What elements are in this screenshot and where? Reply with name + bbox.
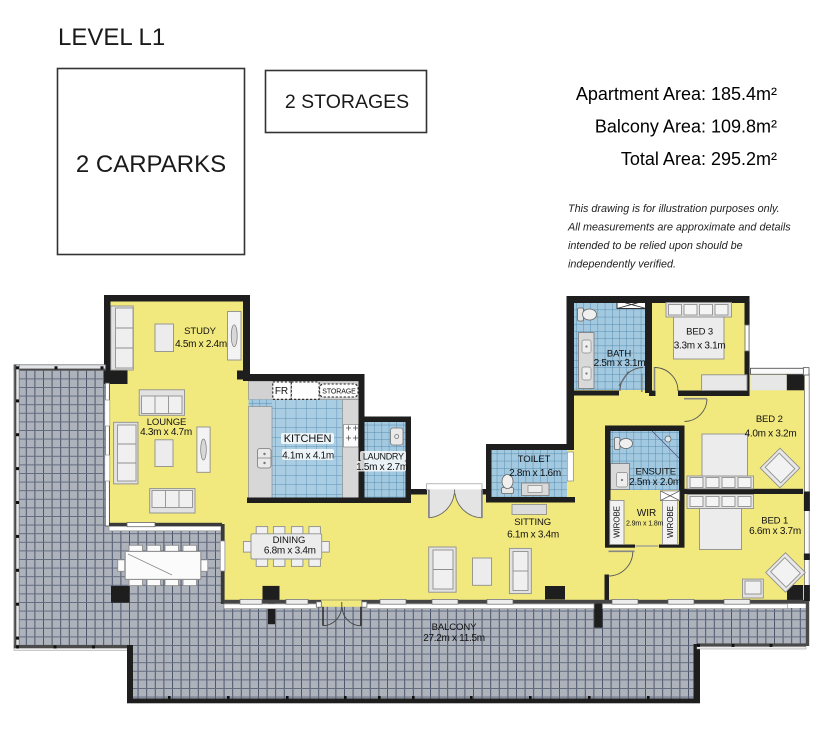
svg-text:This drawing is for illustrati: This drawing is for illustration purpose… xyxy=(568,203,780,215)
svg-text:Balcony Area: 109.8m²: Balcony Area: 109.8m² xyxy=(595,117,777,137)
svg-text:TOILET: TOILET xyxy=(518,454,551,465)
svg-text:2.8m x 1.6m: 2.8m x 1.6m xyxy=(509,468,561,479)
svg-text:WIROBE: WIROBE xyxy=(666,506,675,538)
svg-text:3.3m x 3.1m: 3.3m x 3.1m xyxy=(674,340,726,351)
svg-text:DINING: DINING xyxy=(273,535,306,546)
svg-text:LAUNDRY: LAUNDRY xyxy=(363,452,404,462)
svg-text:WIR: WIR xyxy=(637,508,656,519)
svg-text:4.5m x 2.4m: 4.5m x 2.4m xyxy=(175,339,227,350)
svg-text:27.2m x 11.5m: 27.2m x 11.5m xyxy=(423,633,485,644)
svg-text:BALCONY: BALCONY xyxy=(432,622,477,633)
svg-text:ENSUITE: ENSUITE xyxy=(635,467,675,478)
svg-text:LEVEL L1: LEVEL L1 xyxy=(58,24,165,51)
svg-text:independently verified.: independently verified. xyxy=(568,259,676,271)
svg-text:LOUNGE: LOUNGE xyxy=(147,417,187,428)
svg-text:BED 3: BED 3 xyxy=(686,327,713,338)
svg-text:4.1m x 4.1m: 4.1m x 4.1m xyxy=(282,450,334,461)
svg-text:BATH: BATH xyxy=(607,348,631,359)
svg-text:WIROBE: WIROBE xyxy=(612,506,621,538)
svg-text:STUDY: STUDY xyxy=(184,326,216,337)
svg-text:6.1m x 3.4m: 6.1m x 3.4m xyxy=(507,529,559,540)
svg-text:intended to be relied upon sho: intended to be relied upon should be xyxy=(568,240,743,252)
svg-text:6.6m x 3.7m: 6.6m x 3.7m xyxy=(749,526,801,537)
svg-text:6.8m x 3.4m: 6.8m x 3.4m xyxy=(264,545,316,556)
svg-text:4.3m x 4.7m: 4.3m x 4.7m xyxy=(140,427,192,438)
svg-text:FR: FR xyxy=(275,386,288,397)
svg-text:SITTING: SITTING xyxy=(514,517,551,528)
svg-text:2.5m x 3.1m: 2.5m x 3.1m xyxy=(594,358,646,369)
svg-text:Apartment Area: 185.4m²: Apartment Area: 185.4m² xyxy=(576,84,777,104)
svg-text:Total Area: 295.2m²: Total Area: 295.2m² xyxy=(621,149,777,169)
svg-text:2.9m x 1.8m: 2.9m x 1.8m xyxy=(626,520,664,527)
svg-text:All measurements are approxima: All measurements are approximate and det… xyxy=(567,222,791,234)
svg-text:BED 1: BED 1 xyxy=(761,516,788,527)
svg-text:KITCHEN: KITCHEN xyxy=(284,433,332,445)
svg-text:BED 2: BED 2 xyxy=(756,414,783,425)
svg-text:2 STORAGES: 2 STORAGES xyxy=(285,91,409,113)
svg-text:2 CARPARKS: 2 CARPARKS xyxy=(76,151,226,178)
svg-text:4.0m x 3.2m: 4.0m x 3.2m xyxy=(745,428,797,439)
svg-text:STORAGE: STORAGE xyxy=(322,388,356,395)
svg-text:1.5m x 2.7m: 1.5m x 2.7m xyxy=(356,462,408,473)
svg-text:2.5m x 2.0m: 2.5m x 2.0m xyxy=(629,477,681,488)
